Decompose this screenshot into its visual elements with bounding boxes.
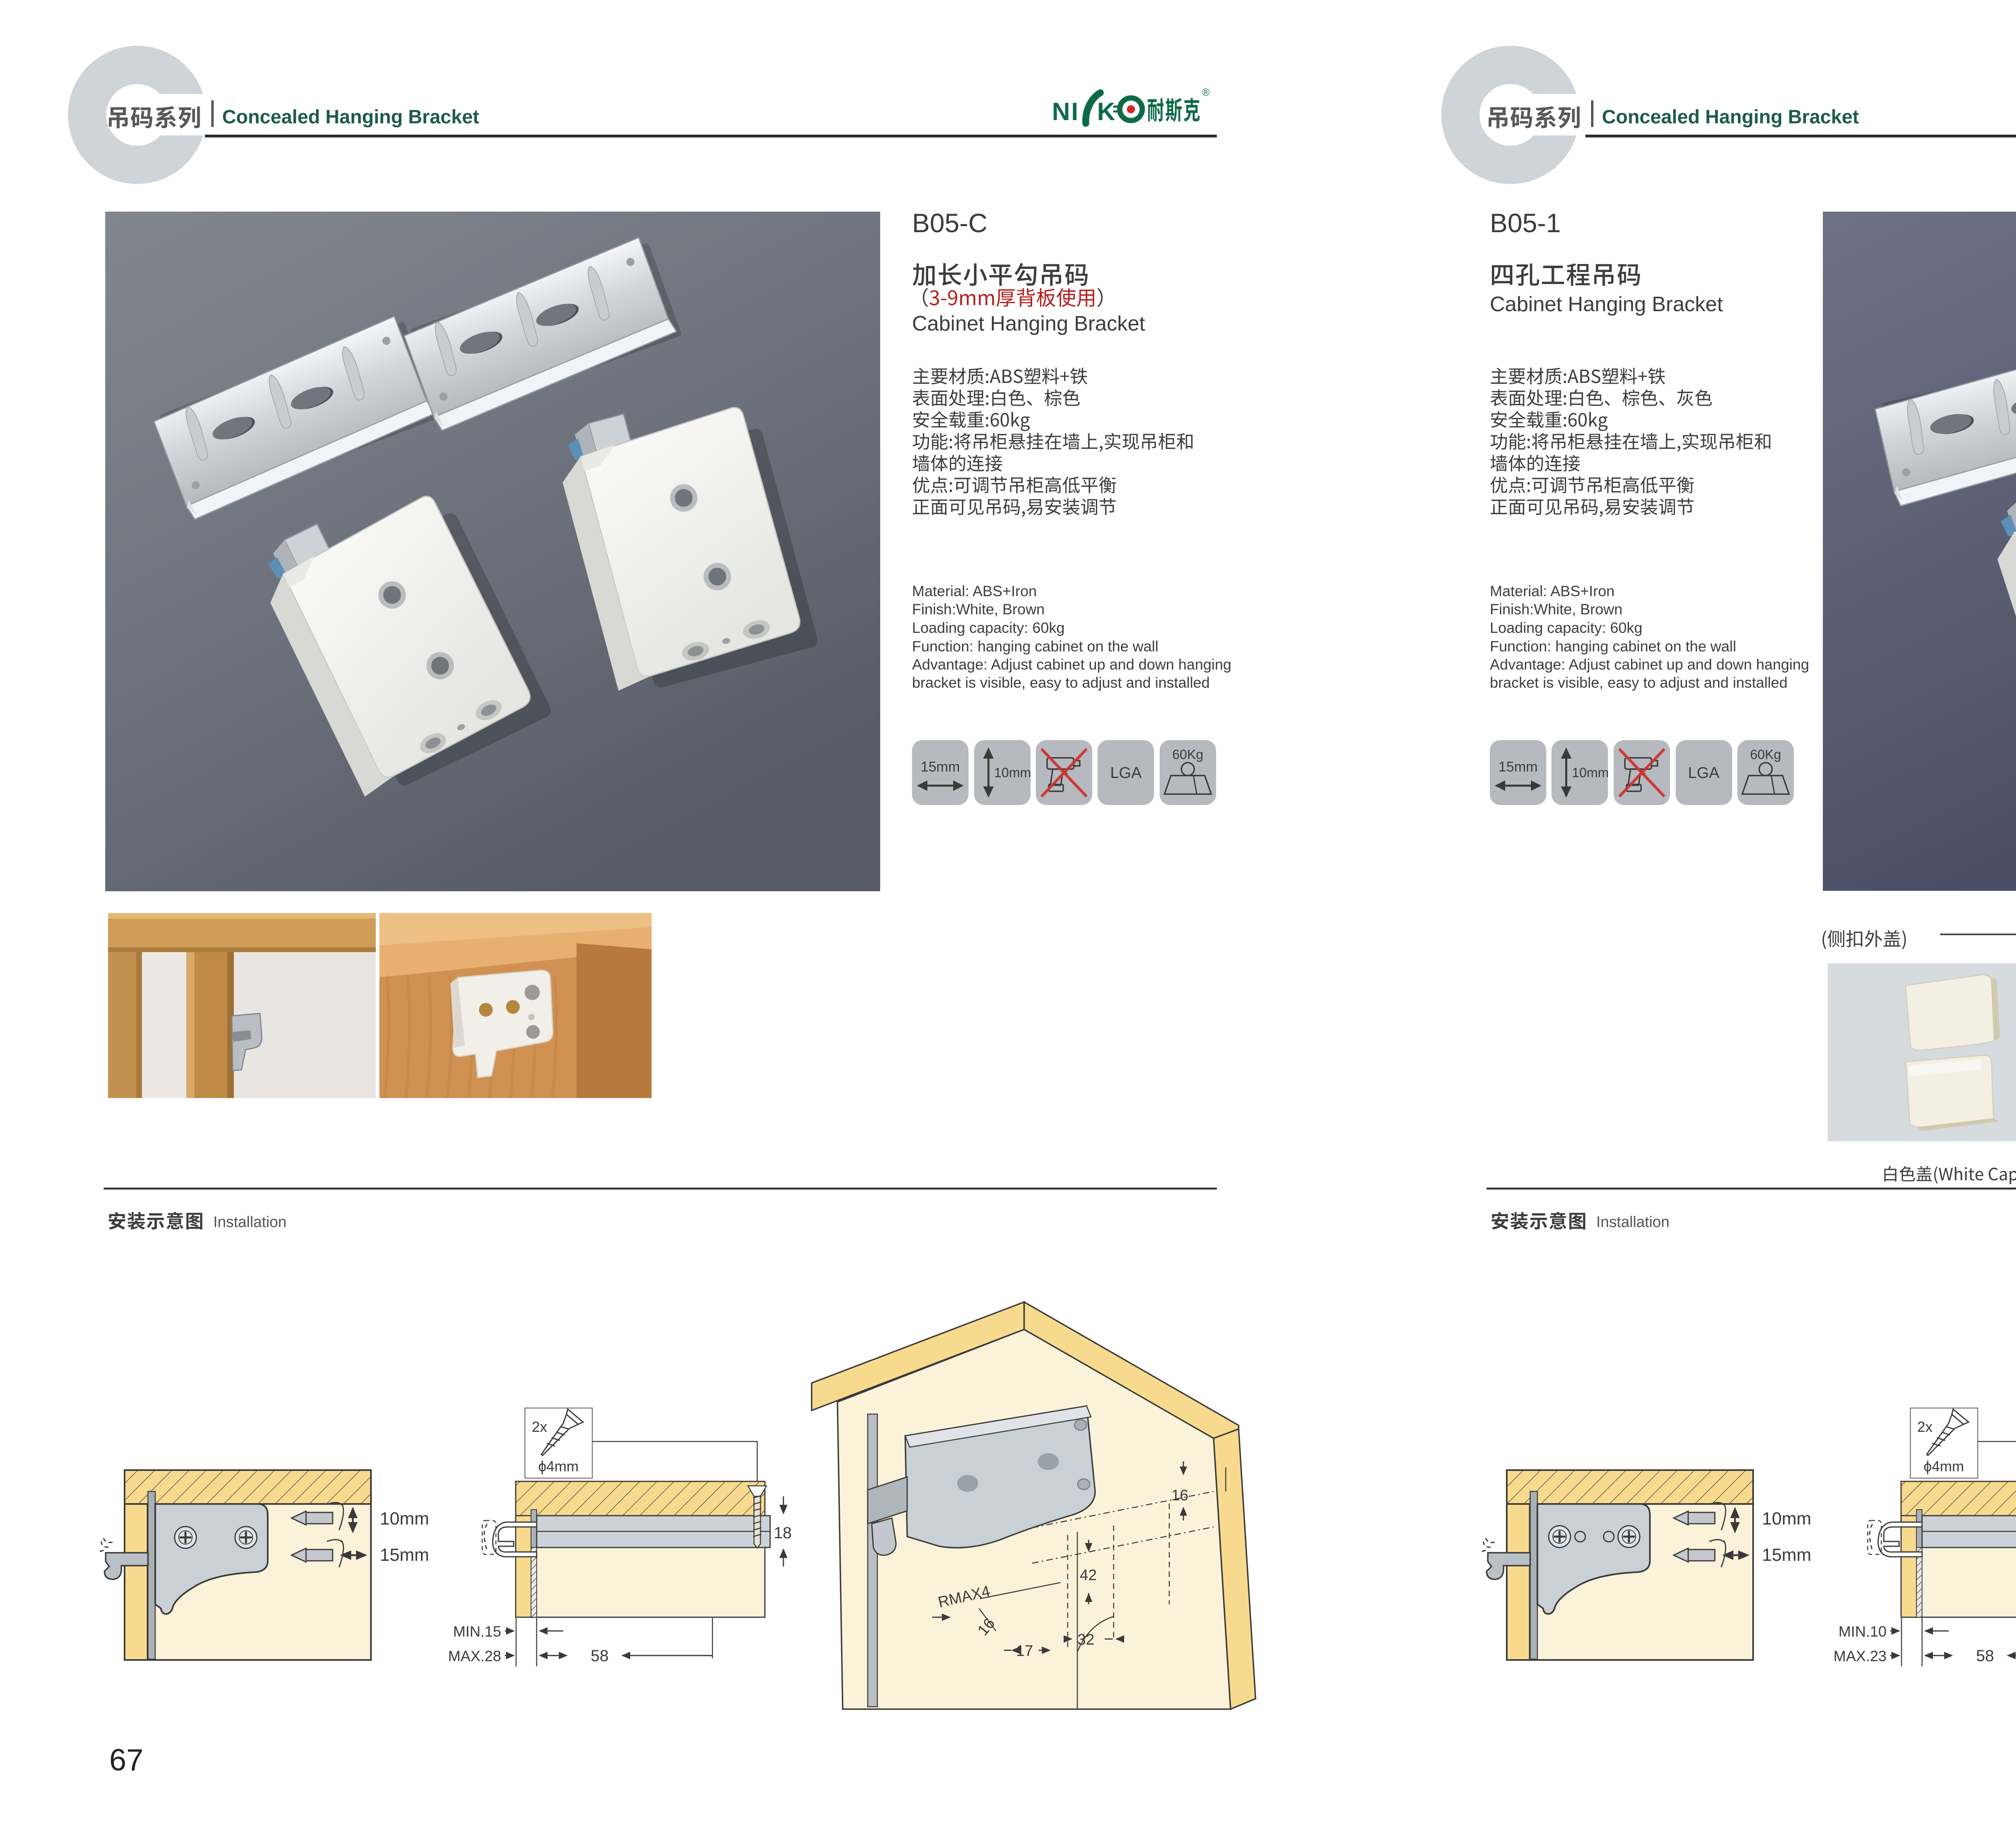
svg-text:2x: 2x <box>1917 1419 1933 1435</box>
svg-text:Cabinet Hanging Bracket: Cabinet Hanging Bracket <box>912 312 1145 335</box>
svg-text:Concealed Hanging Bracket: Concealed Hanging Bracket <box>1602 106 1859 128</box>
svg-text:LGA: LGA <box>1688 764 1719 782</box>
svg-text:NI: NI <box>1052 98 1079 126</box>
svg-text:15mm: 15mm <box>380 1545 429 1565</box>
svg-text:®: ® <box>1202 86 1210 98</box>
svg-text:60Kg: 60Kg <box>1750 747 1781 762</box>
svg-text:15mm: 15mm <box>1498 759 1537 775</box>
svg-text:58: 58 <box>1976 1647 1994 1665</box>
svg-text:2x: 2x <box>532 1419 547 1435</box>
svg-text:ϕ4mm: ϕ4mm <box>1924 1458 1964 1475</box>
svg-text:Loading capacity: 60kg: Loading capacity: 60kg <box>1490 620 1643 636</box>
svg-text:10mm: 10mm <box>1572 765 1609 780</box>
svg-text:bracket is visible, easy to ad: bracket is visible, easy to adjust and i… <box>1490 674 1787 691</box>
svg-text:10mm: 10mm <box>1762 1509 1811 1529</box>
svg-text:16: 16 <box>1171 1487 1188 1504</box>
svg-text:32: 32 <box>1077 1631 1094 1648</box>
svg-text:B05-C: B05-C <box>912 208 987 238</box>
svg-text:10mm: 10mm <box>380 1509 429 1529</box>
svg-text:Installation: Installation <box>213 1214 287 1231</box>
svg-text:K: K <box>1097 98 1115 126</box>
svg-text:67: 67 <box>109 1743 144 1777</box>
svg-text:60Kg: 60Kg <box>1172 747 1203 762</box>
svg-text:MIN.10: MIN.10 <box>1839 1623 1887 1640</box>
svg-text:18: 18 <box>774 1524 792 1542</box>
svg-text:bracket is visible, easy to ad: bracket is visible, easy to adjust and i… <box>912 674 1210 691</box>
svg-text:Loading capacity: 60kg: Loading capacity: 60kg <box>912 620 1065 636</box>
svg-text:Cabinet Hanging Bracket: Cabinet Hanging Bracket <box>1490 293 1723 316</box>
svg-text:15mm: 15mm <box>921 759 960 775</box>
svg-text:MAX.23: MAX.23 <box>1833 1648 1887 1664</box>
svg-text:Function: hanging cabinet on t: Function: hanging cabinet on the wall <box>912 638 1158 655</box>
svg-text:ϕ4mm: ϕ4mm <box>538 1458 579 1475</box>
svg-text:58: 58 <box>591 1647 609 1665</box>
svg-text:42: 42 <box>1080 1567 1097 1584</box>
svg-text:10mm: 10mm <box>994 765 1031 780</box>
svg-text:Function: hanging cabinet on t: Function: hanging cabinet on the wall <box>1490 638 1736 655</box>
svg-text:Concealed Hanging Bracket: Concealed Hanging Bracket <box>222 106 479 128</box>
svg-text:MIN.15: MIN.15 <box>453 1623 501 1640</box>
svg-text:15mm: 15mm <box>1762 1545 1811 1565</box>
svg-text:Advantage: Adjust cabinet up a: Advantage: Adjust cabinet up and down ha… <box>912 656 1231 673</box>
svg-text:Advantage: Adjust cabinet up a: Advantage: Adjust cabinet up and down ha… <box>1490 656 1809 673</box>
svg-text:B05-1: B05-1 <box>1490 208 1561 238</box>
svg-text:LGA: LGA <box>1110 764 1141 782</box>
svg-text:Material: ABS+Iron: Material: ABS+Iron <box>1490 583 1615 599</box>
svg-text:Finish:White, Brown: Finish:White, Brown <box>912 601 1045 618</box>
svg-text:Installation: Installation <box>1596 1214 1670 1231</box>
svg-text:MAX.28: MAX.28 <box>448 1648 501 1664</box>
svg-text:Material: ABS+Iron: Material: ABS+Iron <box>912 583 1037 599</box>
svg-text:Finish:White, Brown: Finish:White, Brown <box>1490 601 1622 618</box>
